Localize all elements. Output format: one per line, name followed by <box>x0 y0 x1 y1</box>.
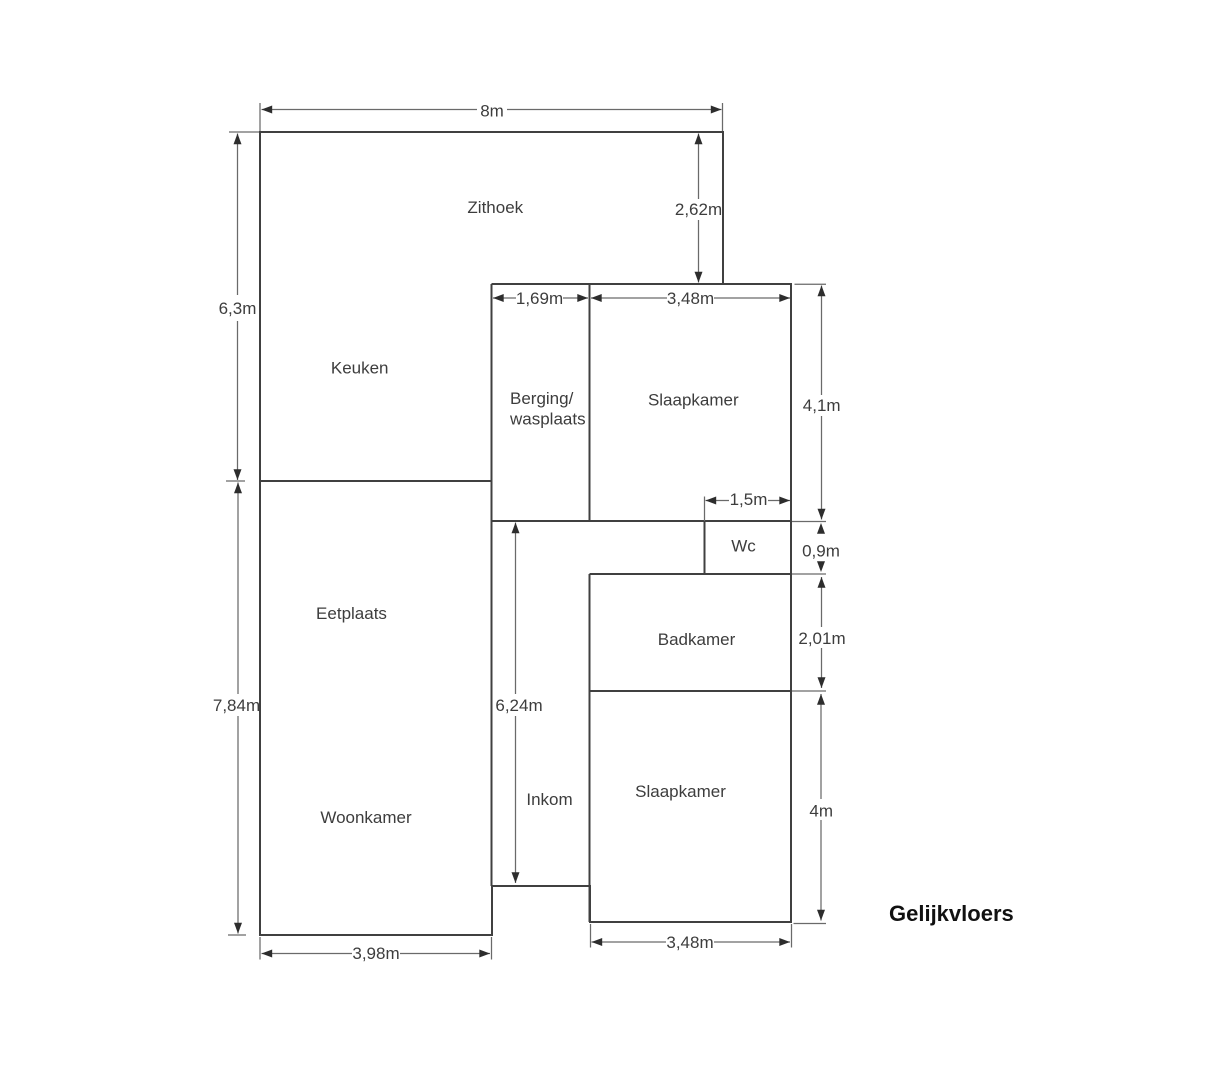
svg-text:Eetplaats: Eetplaats <box>316 604 387 623</box>
svg-text:3,98m: 3,98m <box>352 944 399 963</box>
svg-text:Badkamer: Badkamer <box>658 630 736 649</box>
svg-text:Keuken: Keuken <box>331 359 389 378</box>
svg-text:1,69m: 1,69m <box>516 289 563 308</box>
svg-text:Zithoek: Zithoek <box>467 198 523 217</box>
svg-text:Gelijkvloers: Gelijkvloers <box>889 901 1014 926</box>
svg-text:6,24m: 6,24m <box>495 696 542 715</box>
svg-text:0,9m: 0,9m <box>802 542 840 561</box>
svg-text:Woonkamer: Woonkamer <box>320 808 412 827</box>
svg-text:2,62m: 2,62m <box>675 200 722 219</box>
svg-text:4,1m: 4,1m <box>803 396 841 415</box>
svg-text:7,84m: 7,84m <box>213 696 260 715</box>
svg-text:4m: 4m <box>809 801 833 820</box>
svg-text:Wc: Wc <box>731 537 756 556</box>
svg-text:2,01m: 2,01m <box>798 629 845 648</box>
svg-text:1,5m: 1,5m <box>730 490 768 509</box>
svg-text:6,3m: 6,3m <box>219 299 257 318</box>
svg-text:wasplaats: wasplaats <box>509 410 586 429</box>
svg-text:Slaapkamer: Slaapkamer <box>648 391 739 410</box>
svg-text:Inkom: Inkom <box>526 790 572 809</box>
svg-text:3,48m: 3,48m <box>667 289 714 308</box>
svg-text:3,48m: 3,48m <box>666 933 713 952</box>
svg-text:Berging/: Berging/ <box>510 389 574 408</box>
svg-text:Slaapkamer: Slaapkamer <box>635 782 726 801</box>
svg-text:8m: 8m <box>480 102 504 121</box>
